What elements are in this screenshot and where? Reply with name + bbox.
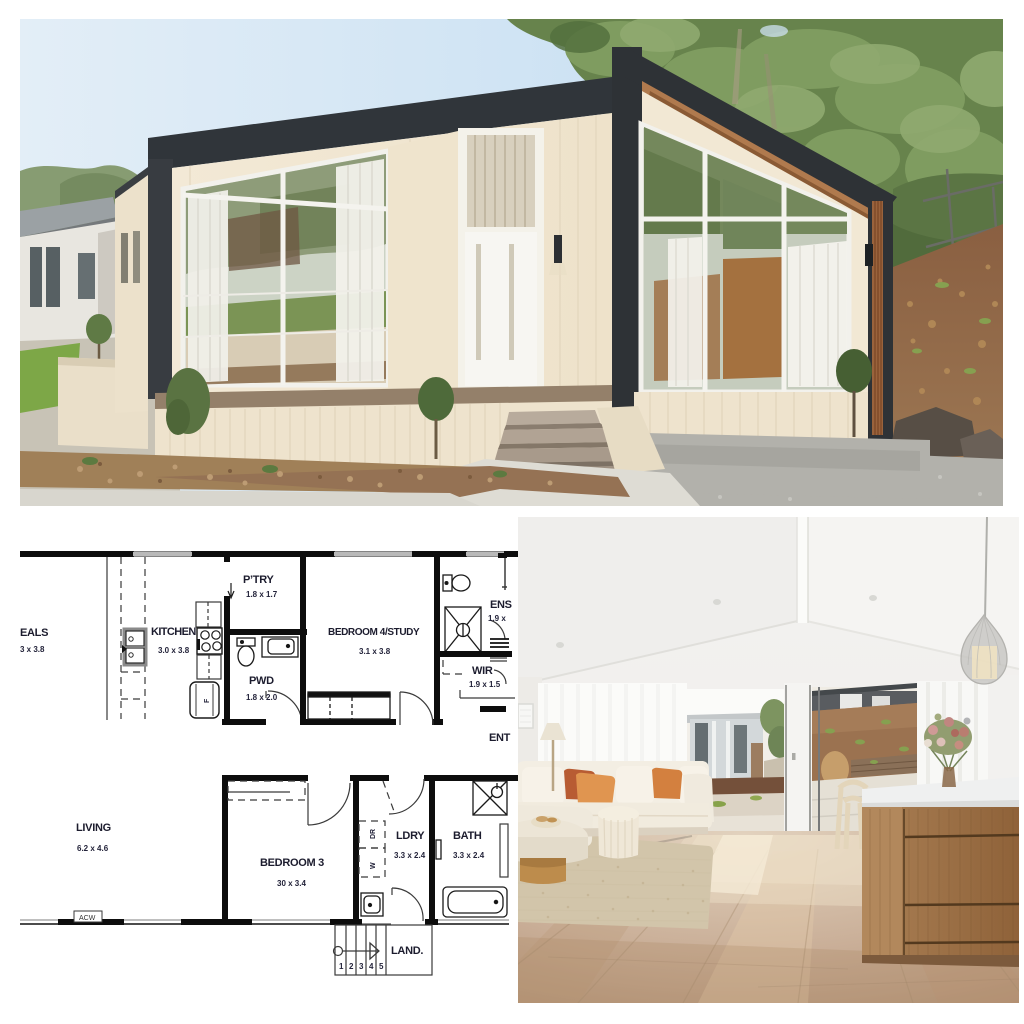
- svg-text:ACW: ACW: [79, 915, 96, 922]
- svg-text:2: 2: [349, 962, 354, 971]
- svg-text:4: 4: [369, 962, 374, 971]
- svg-text:P’TRY: P’TRY: [243, 574, 274, 586]
- svg-text:3.3 x 2.4: 3.3 x 2.4: [394, 851, 426, 860]
- svg-text:BEDROOM 3: BEDROOM 3: [260, 857, 324, 869]
- svg-text:ENT: ENT: [489, 732, 511, 744]
- svg-text:LIVING: LIVING: [76, 822, 111, 834]
- svg-text:F: F: [204, 698, 211, 703]
- svg-text:3.3 x 2.4: 3.3 x 2.4: [453, 851, 485, 860]
- svg-text:1.9 x 1.5: 1.9 x 1.5: [469, 680, 501, 689]
- svg-text:1: 1: [339, 962, 344, 971]
- svg-text:LAND.: LAND.: [391, 945, 423, 957]
- svg-text:BATH: BATH: [453, 830, 482, 842]
- svg-text:1.8 x 1.7: 1.8 x 1.7: [246, 590, 278, 599]
- svg-text:1.9 x: 1.9 x: [488, 614, 506, 623]
- svg-text:DR: DR: [370, 829, 377, 839]
- svg-text:EALS: EALS: [20, 627, 48, 639]
- svg-text:5: 5: [379, 962, 384, 971]
- svg-text:PWD: PWD: [249, 675, 274, 687]
- svg-text:ENS: ENS: [490, 599, 512, 611]
- svg-text:30 x 3.4: 30 x 3.4: [277, 879, 306, 888]
- svg-text:3 x 3.8: 3 x 3.8: [20, 645, 45, 654]
- svg-text:W: W: [370, 862, 377, 869]
- svg-text:WIR: WIR: [472, 665, 493, 677]
- svg-text:LDRY: LDRY: [396, 830, 425, 842]
- svg-text:3: 3: [359, 962, 364, 971]
- svg-text:3.1 x 3.8: 3.1 x 3.8: [359, 647, 391, 656]
- svg-text:BEDROOM 4/STUDY: BEDROOM 4/STUDY: [328, 627, 420, 638]
- svg-text:6.2 x 4.6: 6.2 x 4.6: [77, 844, 109, 853]
- svg-text:1.8 x 2.0: 1.8 x 2.0: [246, 693, 278, 702]
- svg-text:3.0 x 3.8: 3.0 x 3.8: [158, 646, 190, 655]
- svg-text:KITCHEN: KITCHEN: [151, 626, 196, 638]
